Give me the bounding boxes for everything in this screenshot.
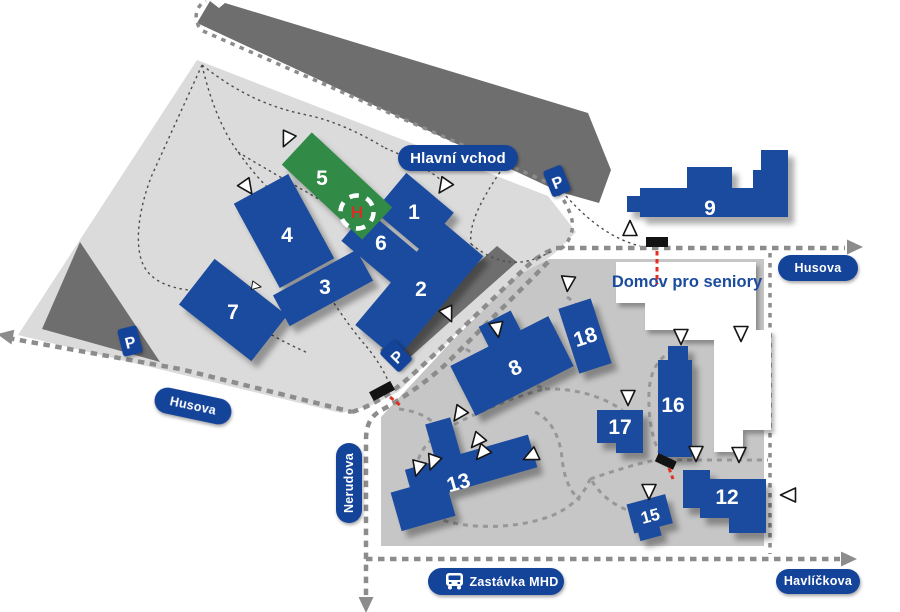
building-2-label: 2 (415, 278, 427, 301)
building-1-label: 1 (408, 201, 420, 224)
building-17-label: 17 (608, 416, 631, 439)
street-label-nerudova: Nerudova (336, 443, 362, 523)
building-3-label: 3 (319, 276, 331, 299)
bus-stop-sign: Zastávka MHD (428, 568, 564, 595)
building-7-label: 7 (227, 301, 239, 324)
street-name-label: Husova (795, 261, 843, 275)
building-9-label: 9 (704, 197, 716, 220)
route-arrow-south-icon (359, 597, 374, 612)
senior-home-label: Domov pro seniory (612, 273, 763, 291)
main-entrance-sign: Hlavní vchod (398, 145, 518, 171)
street-label-husova-east: Husova (778, 255, 858, 281)
building-12-label: 12 (715, 486, 738, 509)
bus-stop-label: Zastávka MHD (469, 575, 558, 589)
building-4-label: 4 (281, 224, 293, 247)
route-arrow-east-icon (847, 240, 863, 255)
route-arrow-west-icon (0, 327, 14, 345)
street-label-husova-west: Husova (152, 385, 234, 427)
entrance-arrow-icon (623, 221, 637, 236)
hospital-campus-map: Domov pro seniory 8 13 15 (0, 0, 900, 612)
street-name-label: Havlíčkova (784, 574, 853, 588)
street-label-havlickova: Havlíčkova (776, 569, 860, 594)
entrance-arrow-icon (781, 488, 796, 502)
building-5-label: 5 (316, 167, 328, 190)
main-entrance-label: Hlavní vchod (410, 150, 506, 167)
building-6-label: 6 (375, 232, 387, 255)
gate-icon (646, 237, 668, 247)
helipad-h-label: H (351, 203, 363, 222)
building-16-label: 16 (661, 394, 684, 417)
route-arrow-southeast-icon (841, 552, 857, 567)
street-name-label: Nerudova (342, 452, 356, 513)
